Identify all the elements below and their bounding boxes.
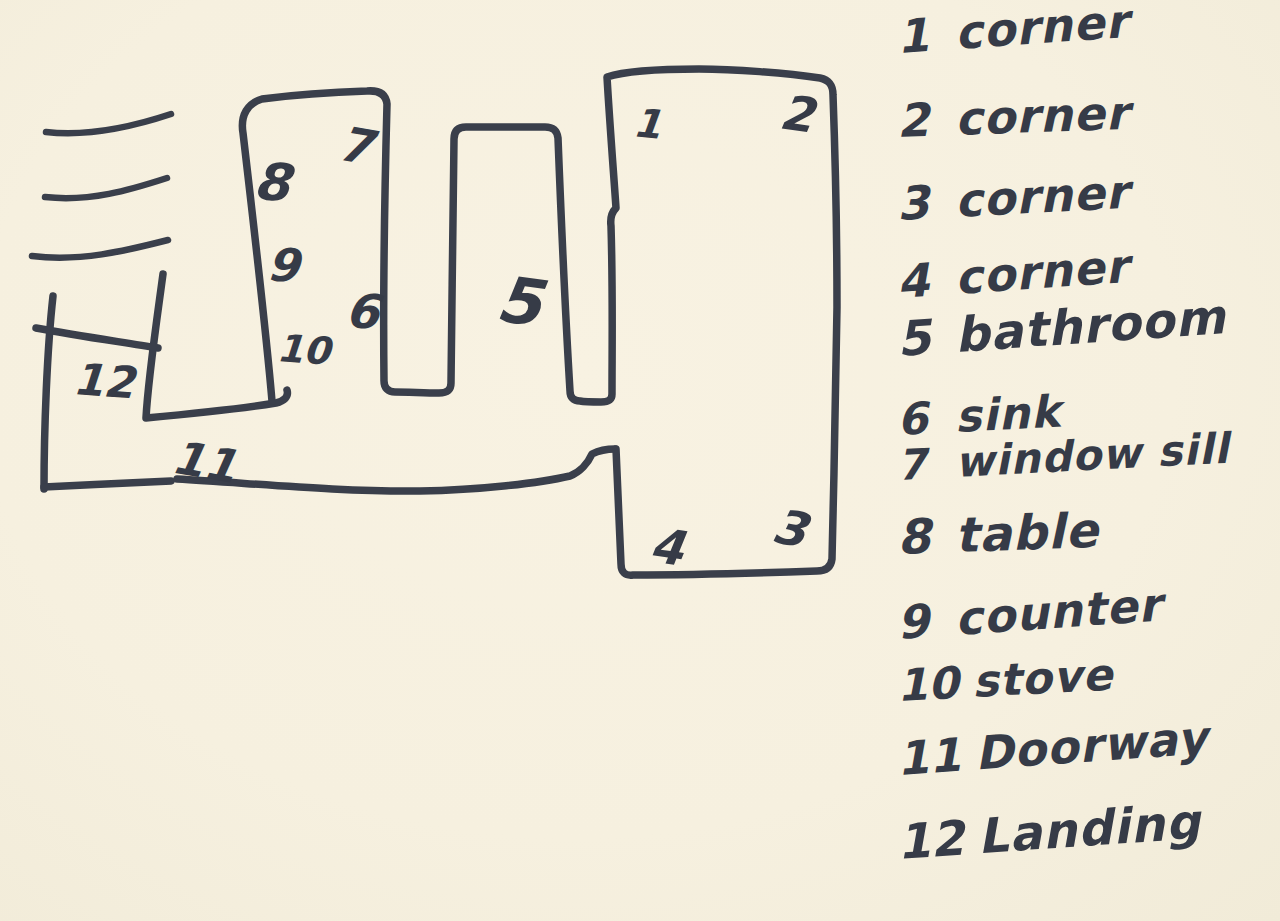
legend-label: stove: [971, 649, 1114, 707]
legend-number: 9: [895, 593, 943, 650]
legend-label: corner: [954, 86, 1130, 146]
legend-number: 8: [896, 507, 942, 565]
legend-label: corner: [953, 0, 1131, 60]
legend-row-1: 1 corner: [895, 0, 1130, 64]
legend-number: 6: [896, 392, 943, 445]
legend-number: 4: [895, 252, 943, 309]
legend-number: 2: [896, 92, 942, 148]
legend-label: Landing: [976, 793, 1203, 864]
legend-row-11: 11 Doorway: [895, 710, 1209, 786]
legend-number: 3: [896, 175, 943, 231]
legend-label: corner: [953, 239, 1131, 305]
legend-label: counter: [953, 578, 1164, 646]
legend-row-10: 10 stove: [896, 649, 1115, 711]
legend-number: 5: [895, 308, 943, 367]
legend-row-3: 3 corner: [896, 165, 1131, 231]
legend-number: 10: [896, 657, 960, 711]
legend-row-2: 2 corner: [896, 86, 1130, 148]
legend-number: 1: [895, 7, 943, 64]
legend-label: table: [954, 502, 1100, 563]
legend-list: 1 corner 2 corner 3 corner 4 corner 5 ba…: [0, 0, 1280, 921]
legend-number: 7: [896, 439, 943, 490]
legend-label: corner: [954, 165, 1131, 228]
legend-row-9: 9 counter: [895, 578, 1163, 650]
legend-number: 12: [895, 809, 966, 870]
legend-label: Doorway: [973, 710, 1209, 780]
legend-row-8: 8 table: [896, 502, 1100, 565]
legend-row-12: 12 Landing: [895, 793, 1202, 870]
legend-number: 11: [895, 728, 963, 786]
